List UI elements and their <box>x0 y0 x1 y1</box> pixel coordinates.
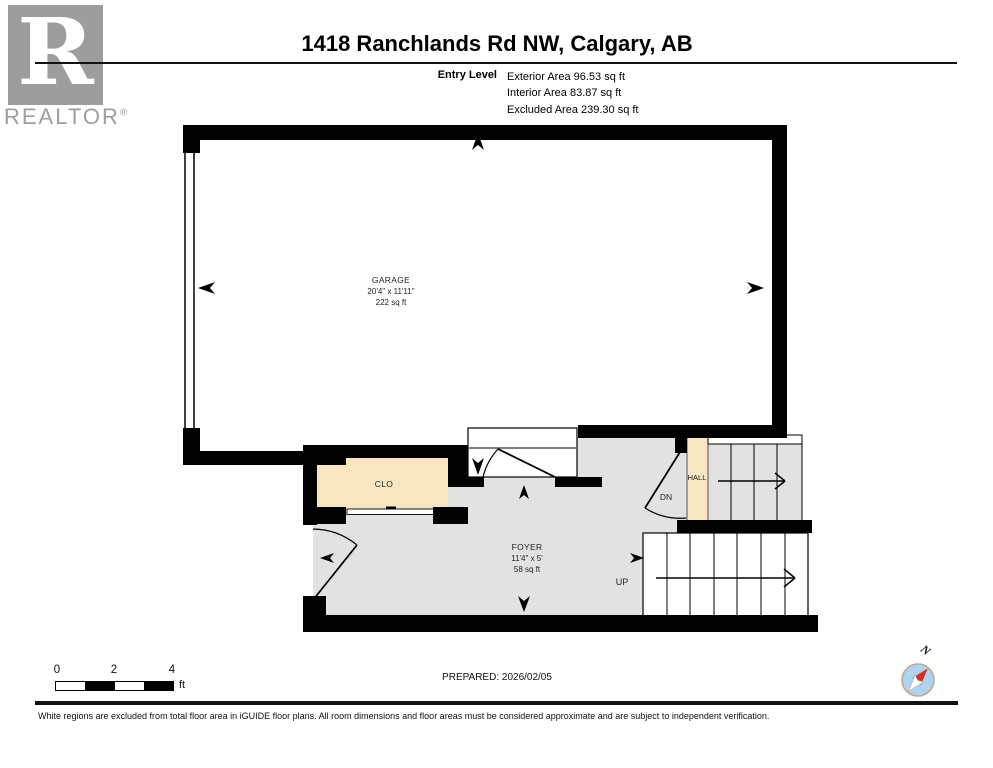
foyer-label: FOYER 11'4" x 5' 58 sq ft <box>511 542 543 575</box>
foyer-dims: 11'4" x 5' <box>511 553 543 564</box>
foyer-area: 58 sq ft <box>511 564 543 575</box>
clo-name: CLO <box>375 479 393 490</box>
foyer-name: FOYER <box>511 542 543 553</box>
entry-landing <box>468 428 577 477</box>
garage-label: GARAGE 20'4" x 11'11" 222 sq ft <box>367 275 414 308</box>
garage-name: GARAGE <box>367 275 414 286</box>
upper-stairs-floor <box>708 444 802 520</box>
dn-stairs-label: DN <box>660 492 672 502</box>
floorplan-drawing <box>0 0 993 768</box>
hall-label: HALL <box>688 473 707 482</box>
garage-door <box>185 150 194 430</box>
arrow-left-wall <box>198 282 215 294</box>
up-stairs-label: UP <box>616 577 629 587</box>
scale-bar <box>55 681 174 691</box>
page-title: 1418 Ranchlands Rd NW, Calgary, AB <box>301 31 692 57</box>
lower-stairs <box>643 533 808 616</box>
floorplan-page: R REALTOR® 1418 Ranchlands Rd NW, Calgar… <box>0 0 993 768</box>
arrow-right-wall <box>747 282 764 294</box>
garage-area: 222 sq ft <box>367 297 414 308</box>
garage-dims: 20'4" x 11'11" <box>367 286 414 297</box>
clo-label: CLO <box>375 479 393 490</box>
header-divider-line <box>35 62 957 64</box>
